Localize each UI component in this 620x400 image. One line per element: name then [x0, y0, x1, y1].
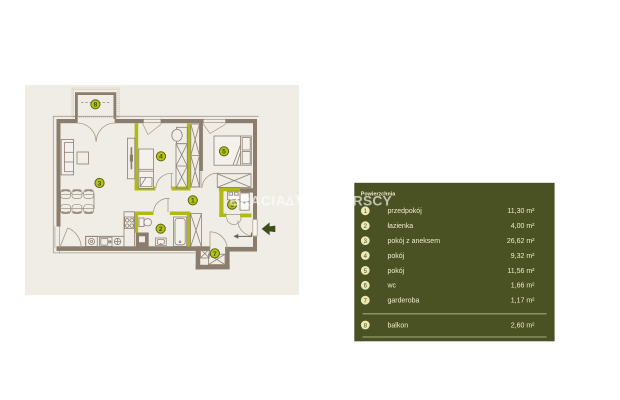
svg-text:pokój z aneksem: pokój z aneksem: [388, 238, 441, 245]
svg-text:4: 4: [159, 154, 163, 161]
svg-text:2: 2: [159, 226, 163, 233]
svg-text:1,66 m²: 1,66 m²: [511, 283, 535, 290]
svg-text:1,17 m²: 1,17 m²: [511, 298, 535, 305]
svg-text:łazienka: łazienka: [388, 223, 414, 230]
svg-text:1: 1: [191, 198, 195, 205]
svg-text:11,30 m²: 11,30 m²: [507, 208, 535, 215]
svg-text:garderoba: garderoba: [388, 298, 420, 305]
svg-text:SADURSCY: SADURSCY: [313, 194, 392, 209]
svg-text:przedpokój: przedpokój: [388, 208, 423, 215]
svg-text:4,00 m²: 4,00 m²: [511, 223, 535, 230]
svg-text:11,56 m²: 11,56 m²: [507, 268, 535, 275]
svg-text:9,32 m²: 9,32 m²: [511, 253, 535, 260]
svg-text:wc: wc: [387, 283, 397, 290]
svg-text:2,60 m²: 2,60 m²: [511, 322, 535, 329]
svg-text:7: 7: [213, 251, 217, 258]
svg-text:5: 5: [222, 149, 226, 156]
svg-text:3: 3: [98, 180, 102, 187]
svg-text:pokój: pokój: [388, 268, 405, 275]
svg-text:8: 8: [94, 102, 98, 109]
svg-text:pokój: pokój: [388, 253, 405, 260]
svg-text:balkon: balkon: [388, 322, 409, 329]
svg-text:26,62 m²: 26,62 m²: [507, 238, 535, 245]
svg-text:BRACIA: BRACIA: [230, 194, 287, 209]
